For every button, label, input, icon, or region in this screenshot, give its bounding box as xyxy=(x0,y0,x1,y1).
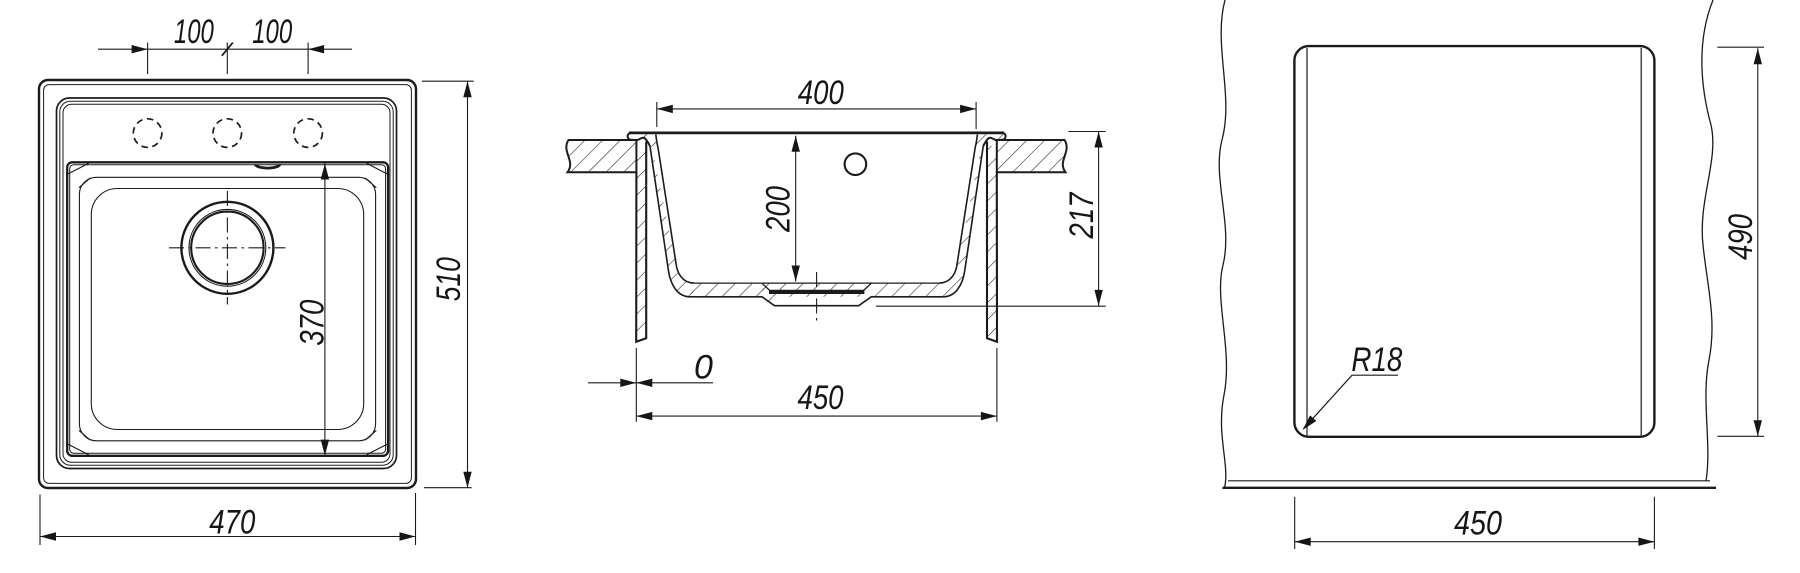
svg-text:100: 100 xyxy=(252,13,292,51)
svg-text:470: 470 xyxy=(209,503,255,541)
svg-text:400: 400 xyxy=(798,74,844,112)
svg-text:100: 100 xyxy=(174,13,214,51)
svg-text:200: 200 xyxy=(760,186,798,233)
svg-text:0: 0 xyxy=(694,349,713,387)
svg-text:490: 490 xyxy=(1722,214,1760,260)
svg-text:370: 370 xyxy=(293,300,331,346)
svg-text:450: 450 xyxy=(798,379,844,417)
svg-text:217: 217 xyxy=(1063,192,1101,240)
svg-text:450: 450 xyxy=(1454,505,1502,543)
svg-text:510: 510 xyxy=(430,257,468,301)
svg-text:R18: R18 xyxy=(1351,341,1402,379)
